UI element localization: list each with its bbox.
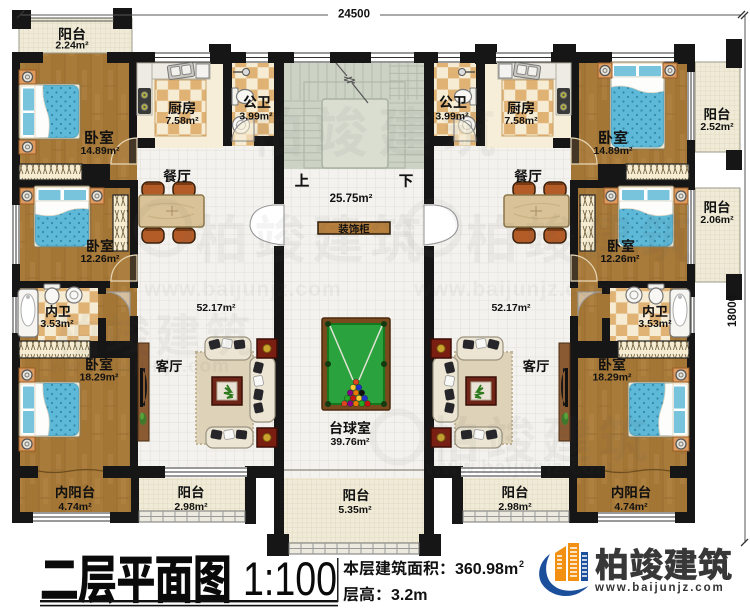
svg-text:1:100: 1:100 — [243, 553, 337, 606]
svg-text:52.17m²: 52.17m² — [491, 302, 531, 314]
svg-text:www.baijunjz.com: www.baijunjz.com — [425, 457, 615, 479]
svg-text:18.29m²: 18.29m² — [592, 372, 632, 384]
svg-text:7.58m²: 7.58m² — [504, 115, 538, 127]
svg-text:2.52m²: 2.52m² — [700, 121, 734, 133]
svg-text:2.98m²: 2.98m² — [498, 501, 532, 513]
svg-text:12.26m²: 12.26m² — [80, 253, 120, 265]
svg-text:www.baijunjz.com: www.baijunjz.com — [49, 356, 230, 377]
svg-text:360.98m: 360.98m — [455, 561, 518, 578]
svg-text:2.06m²: 2.06m² — [700, 214, 734, 226]
svg-text:www.baijunjz.com: www.baijunjz.com — [413, 278, 611, 301]
svg-text:2.98m²: 2.98m² — [174, 501, 208, 513]
svg-text:4.74m²: 4.74m² — [614, 501, 648, 513]
svg-text:18000: 18000 — [727, 295, 739, 327]
svg-text:39.76m²: 39.76m² — [330, 436, 370, 448]
svg-text:5.35m²: 5.35m² — [338, 504, 372, 516]
svg-text:12.26m²: 12.26m² — [600, 253, 640, 265]
svg-text:3.53m²: 3.53m² — [638, 318, 672, 330]
svg-text:3.2m: 3.2m — [391, 587, 427, 604]
svg-text:14.89m²: 14.89m² — [80, 145, 120, 157]
svg-text:4.74m²: 4.74m² — [58, 501, 92, 513]
svg-text:2.24m²: 2.24m² — [55, 40, 89, 52]
svg-text:24500: 24500 — [338, 9, 370, 21]
svg-text:2: 2 — [519, 559, 524, 569]
svg-text:www.baijunjz.com: www.baijunjz.com — [594, 582, 725, 594]
svg-text:18.29m²: 18.29m² — [79, 372, 119, 384]
svg-text:3.99m²: 3.99m² — [239, 111, 273, 123]
svg-text:14.89m²: 14.89m² — [593, 145, 633, 157]
svg-text:7.58m²: 7.58m² — [165, 115, 199, 127]
svg-text:25.75m²: 25.75m² — [330, 193, 373, 205]
svg-text:3.53m²: 3.53m² — [40, 318, 74, 330]
svg-text:52.17m²: 52.17m² — [196, 302, 236, 314]
svg-text:www.baijunjz.com: www.baijunjz.com — [143, 278, 341, 301]
svg-text:3.99m²: 3.99m² — [435, 111, 469, 123]
